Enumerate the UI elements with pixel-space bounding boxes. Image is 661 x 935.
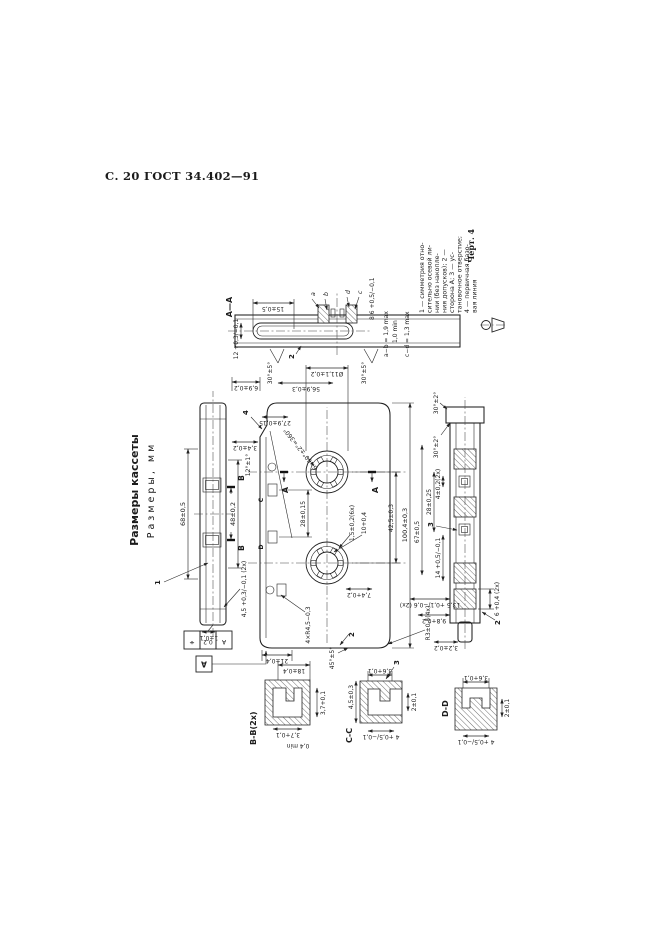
gap-letter-a: a [310, 292, 317, 296]
dim-4-5: 4,5 +0,3/−0,1 (2х) [241, 561, 248, 618]
guide-hole-2 [268, 463, 276, 471]
legend-line-1: 1 — симметрия отно- [419, 242, 426, 313]
legend-line-5: сторона А; 3 — ус- [449, 252, 456, 313]
guide-pin-icon [480, 318, 507, 332]
dim-2-cc: 2±0,1 [411, 693, 418, 712]
dim-3-4: 3,4±0,2 [233, 444, 257, 451]
ref-callout-2-bottom: 2 [494, 620, 502, 625]
section-aa-title: А—А [225, 296, 234, 317]
formula-ab: a−b = 1,9 max [383, 311, 390, 357]
dim-2-dd: 2±0,1 [504, 699, 511, 718]
legend-line-2: сительно осевой ли- [426, 245, 434, 313]
dim-3-6-cc: 3,6+0,1 [368, 667, 392, 674]
figure-title: Размеры кассеты [128, 434, 141, 546]
section-mark-b1: B [237, 545, 246, 551]
dim-0-4-min: 0,4 min [286, 742, 309, 749]
dim-3-7-left: 3,7+0,1 [276, 731, 300, 738]
guide-hole [266, 586, 274, 594]
formula-cd: c−d = 1,3 max [404, 311, 411, 357]
dim-42-5: 42,5±0,3 [388, 504, 395, 532]
dim-68: 68±0,5 [179, 502, 187, 526]
dim-hub-teeth-angle: 6×60°±2°=360° [282, 427, 319, 471]
legend-line-4: ния допусков); 2 — [442, 249, 449, 313]
section-mark-a1: А [281, 486, 290, 493]
dim-28-025: 28±0,25 [426, 489, 433, 515]
ref-callout-3: 3 [427, 522, 435, 527]
dim-3-2: 3,2±0,2 [434, 644, 458, 651]
dim-4-02: 4±0,2(2х) [435, 469, 442, 499]
ref-callout-4: 4 [242, 410, 250, 415]
dim-4-dd: 4 +0,5/−0,1 [457, 738, 494, 745]
view-section-cc: С-С 4,5±0,3 3,6+0,1 4 +0,5/−0,1 2±0,1 3 [345, 660, 418, 743]
dim-67: 67±0,5 [414, 521, 421, 543]
dim-9-8: 9,8+0,2 [422, 617, 446, 624]
dim-hub-dia: Ø11,1±0,2 [310, 370, 343, 377]
section-cc-title: С-С [345, 728, 354, 743]
datum-a-frame: А [196, 651, 266, 672]
dim-angle-30a: 30°±5° [267, 362, 274, 384]
ref-callout-2-aa: 2 [288, 354, 296, 359]
dim-3-7-bottom: 3,7+0,1 [320, 691, 327, 715]
view-edge-top: 68±0,5 48±0,2 B B 4,5 +0,3/−0,1 (2х) 1±0… [154, 391, 266, 672]
page-header: С. 20 ГОСТ 34.402—91 [105, 169, 259, 183]
dim-6-9: 6,9±0,2 [234, 384, 258, 391]
dim-tooth-width: 1,5±0,2(6х) [349, 505, 356, 541]
section-dd-title: D-D [441, 700, 450, 717]
dim-13-5: 13,5 +0,1/−0,6 (2х) [400, 601, 460, 608]
gap-letter-c: c [357, 290, 364, 294]
legend-line-3: нии (без накопле- [433, 253, 441, 313]
dim-chamfer-45: 45°±5° [329, 647, 336, 669]
view-main-face: А А D C 28±0,15 6×60°±2°=360° 1,5±0,2(6х… [232, 365, 434, 669]
dim-18: 18±0,4 [283, 667, 305, 674]
fcf-tolerance-value: 0,2 [203, 638, 213, 645]
dim-window-radius: 4×R4,5−0,3 [305, 606, 312, 643]
section-mark-c: C [258, 497, 265, 502]
section-mark-d: D [258, 544, 265, 549]
dim-28-015: 28±0,15 [300, 501, 307, 527]
dim-3-6-dd: 3,6+0,1 [464, 674, 488, 681]
fcf-datum-ref: А [221, 638, 226, 645]
section-mark-a2: А [371, 486, 380, 493]
drawing-canvas: С. 20 ГОСТ 34.402—91 Размеры кассеты Раз… [0, 0, 661, 935]
dim-hub-bore: 10+0,4 [361, 512, 368, 534]
dim-12: 12 +0,3/−0,1 [233, 318, 240, 359]
ref-callout-3-cc: 3 [393, 660, 401, 665]
dim-30-2b: 30°±2° [433, 392, 440, 414]
datum-a-label: А [201, 660, 207, 669]
figure-caption: Черт. 4 [466, 228, 476, 263]
ref-callout-1: 1 [154, 580, 162, 585]
view-section-dd: D-D 4 +0,5/−0,1 3,6+0,1 2±0,1 [441, 674, 511, 745]
gap-letter-b: b [323, 292, 330, 296]
figure-legend: 1 — симметрия отно- сительно осевой ли- … [419, 228, 507, 332]
rotated-drawing: Размеры кассеты Размеры, мм 68±0,5 48±0, [128, 228, 511, 749]
gap-letter-d: d [345, 290, 352, 294]
dim-angle-30b: 30°±5° [361, 362, 368, 384]
dim-100-4: 100,4±0,3 [401, 508, 409, 542]
dim-14: 14 +0,5/−0,1 [435, 537, 442, 578]
formula-ab-min: 1,0 min [392, 320, 399, 343]
position-tolerance-icon: ⌖ [189, 638, 194, 647]
dim-slant-angle: 12°±1° [245, 454, 252, 476]
dim-21: 21±0,4 [266, 657, 288, 664]
dim-4-5-cc: 4,5±0,3 [348, 685, 355, 709]
dim-27-9: 27,9±0,15 [259, 419, 291, 426]
dim-8-6: 8,6 +0,5/−0,1 [369, 277, 376, 320]
dim-15: 15±0,5 [262, 305, 284, 312]
section-bb-title: В-В(2х) [249, 711, 258, 745]
figure-subtitle: Размеры, мм [146, 442, 157, 539]
ref-callout-2: 2 [348, 632, 356, 637]
dim-30-2a: 30°±2° [433, 436, 440, 458]
standard-page: С. 20 ГОСТ 34.402—91 Размеры кассеты Раз… [0, 0, 661, 935]
legend-line-6: тановочное отверстие; [457, 236, 464, 313]
legend-line-8: вая линия [472, 279, 479, 313]
dim-7-4: 7,4+0,2 [347, 591, 371, 598]
view-section-bb: В-В(2х) 3,7+0,1 3,7+0,1 0,4 min 18±0,4 [249, 661, 327, 749]
dim-4-cc: 4 +0,5/−0,1 [362, 733, 399, 740]
dim-48: 48±0,2 [229, 502, 237, 526]
dim-6-04: 6 +0,4 (2х) [494, 582, 501, 616]
